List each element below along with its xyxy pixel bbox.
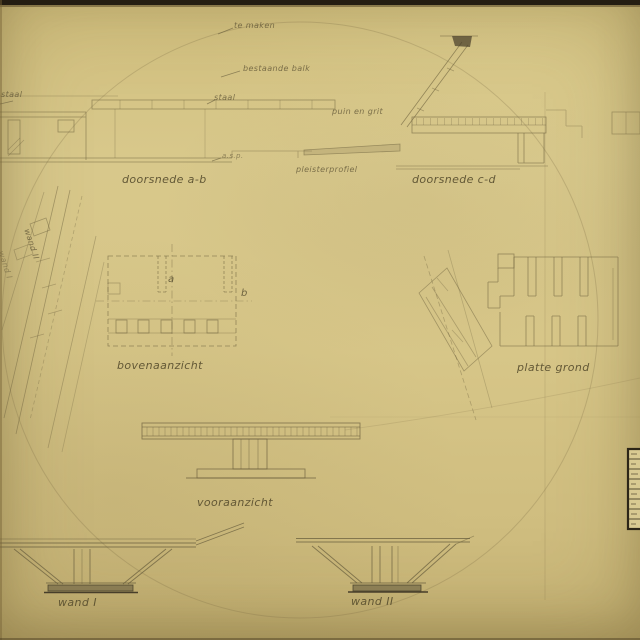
annotation-asp: a.s.p. [222,153,243,160]
section-cd-drawing [304,36,640,169]
vooraanzicht-drawing [142,423,360,478]
marker-b: b [241,289,248,299]
label-doorsnede-cd: doorsnede c-d [412,174,496,185]
photo-edge-left [0,0,2,640]
marker-a: a [168,275,175,285]
annotation-te-maken: te maken [234,22,275,30]
scanned-drawing-sheet: te maken bestaande balk staal staal a.s.… [0,0,640,640]
annotation-bestaande-balk: bestaande balk [243,65,310,73]
photo-edge-top-shadow [0,5,640,7]
annotation-leaders [0,28,240,161]
wand2-drawing [296,536,474,592]
drawing-linework [0,0,640,640]
platte-grond-drawing [488,254,618,346]
label-doorsnede-ab: doorsnede a-b [122,174,207,185]
wand1-drawing [0,523,244,593]
label-platte-grond: platte grond [517,362,590,373]
label-wand-2: wand II [351,596,393,607]
label-wand-1: wand I [58,597,97,608]
annotation-staal-left: staal [1,91,22,99]
label-vooraanzicht: vooraanzicht [197,497,273,508]
title-block-fragment [628,449,640,529]
annotation-staal-top: staal [214,94,235,102]
rotated-plan-right [419,250,492,420]
label-pleisterprofiel: pleisterprofiel [296,166,357,174]
bovenaanzicht-drawing [96,244,252,356]
label-bovenaanzicht: bovenaanzicht [117,360,203,371]
section-ab-drawing [0,96,335,162]
construction-circle [2,22,640,618]
annotation-puin-en-grit: puin en grit [332,108,383,116]
